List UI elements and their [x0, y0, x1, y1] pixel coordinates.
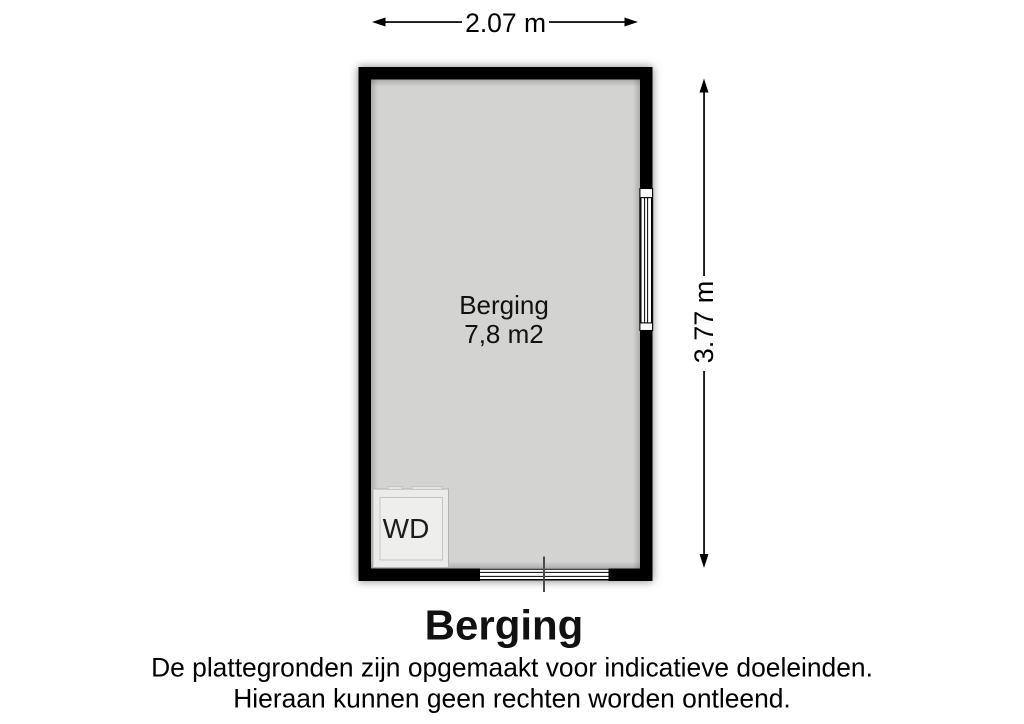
svg-text:WD: WD: [383, 513, 430, 544]
svg-text:Berging: Berging: [425, 602, 584, 649]
svg-text:7,8 m2: 7,8 m2: [464, 319, 544, 349]
svg-text:3.77 m: 3.77 m: [689, 281, 719, 364]
svg-text:Berging: Berging: [459, 290, 549, 320]
svg-text:Hieraan kunnen geen rechten wo: Hieraan kunnen geen rechten worden ontle…: [233, 684, 791, 714]
svg-text:2.07 m: 2.07 m: [465, 8, 546, 38]
svg-text:De plattegronden zijn opgemaak: De plattegronden zijn opgemaakt voor ind…: [151, 653, 873, 683]
